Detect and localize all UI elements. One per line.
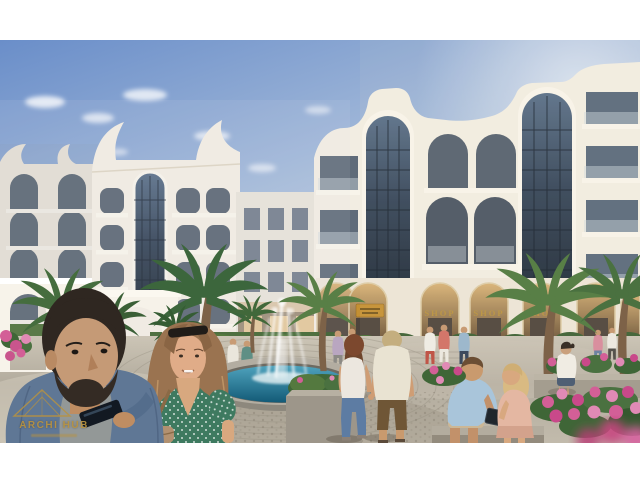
render-canvas: SHOP SHOP SHOP xyxy=(0,0,640,480)
watermark-tagline xyxy=(31,434,77,437)
render-scene: SHOP SHOP SHOP xyxy=(0,40,640,443)
watermark-title: ARCHI HUB xyxy=(10,420,98,431)
archihub-watermark: ARCHI HUB xyxy=(10,388,98,437)
architectural-render-photo: SHOP SHOP SHOP xyxy=(0,40,640,443)
logo-pyramid-icon xyxy=(10,388,74,418)
